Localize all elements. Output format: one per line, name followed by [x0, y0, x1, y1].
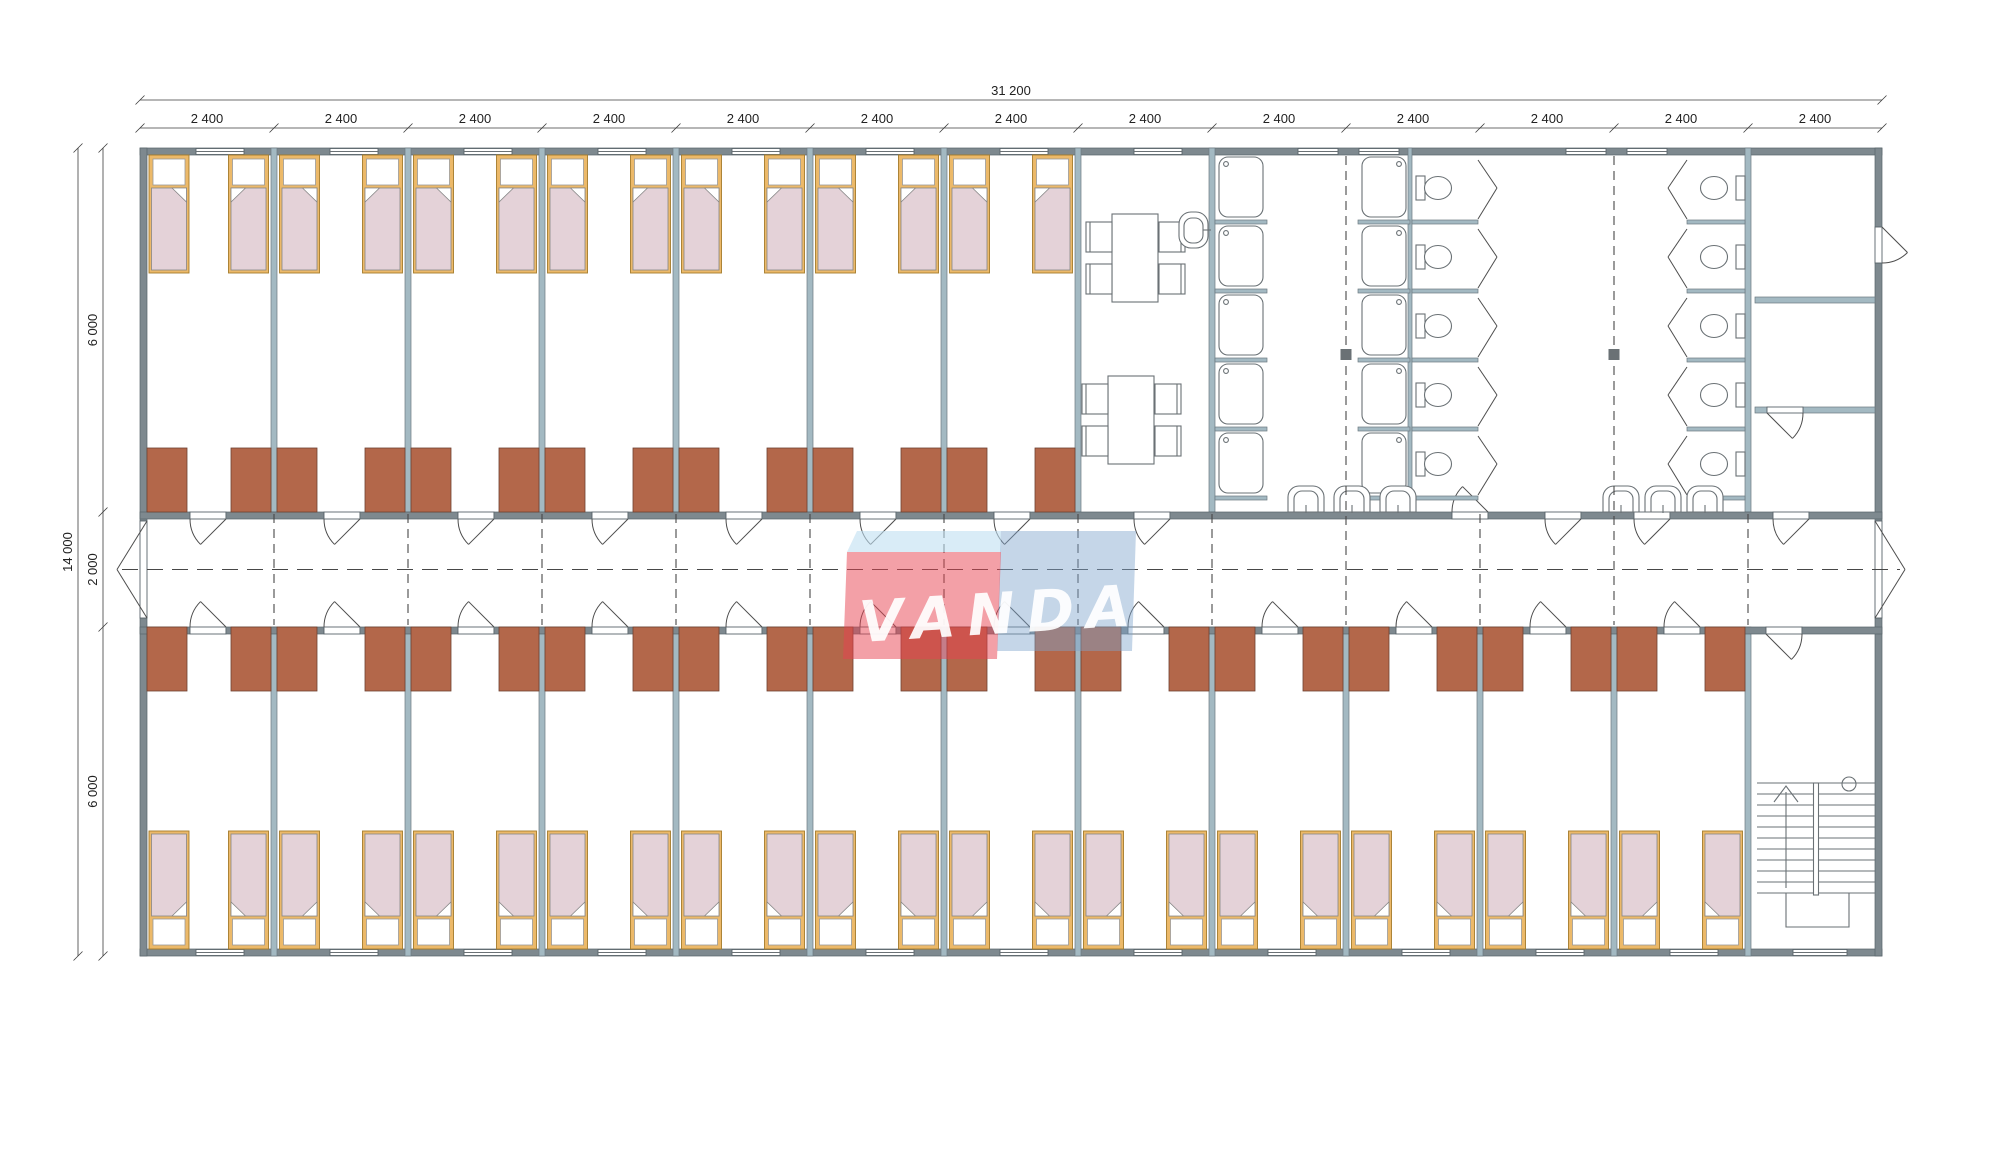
dining-table	[1086, 214, 1185, 302]
shower-stall	[1219, 157, 1263, 217]
dimension-label: 2 400	[1397, 111, 1430, 126]
partition-wall	[1209, 148, 1215, 512]
bed-symbol	[950, 831, 990, 949]
bed-symbol	[414, 831, 454, 949]
wardrobe-symbol	[1705, 627, 1745, 691]
partition-wall	[941, 148, 947, 512]
wardrobe-symbol	[411, 448, 451, 512]
shower-stall	[1219, 364, 1263, 424]
wardrobe-symbol	[1215, 627, 1255, 691]
wardrobe-symbol	[1349, 627, 1389, 691]
bed-symbol	[899, 155, 939, 273]
bed-symbol	[497, 831, 537, 949]
staircase	[1757, 777, 1875, 927]
shower-stall	[1219, 433, 1263, 493]
bed-symbol	[1301, 831, 1341, 949]
washbasin	[1603, 486, 1639, 513]
bed-symbol	[548, 831, 588, 949]
shower-stall	[1362, 157, 1406, 217]
wardrobe-symbol	[277, 627, 317, 691]
dimension-label: 2 400	[1799, 111, 1832, 126]
wardrobe-symbol	[147, 627, 187, 691]
dimension-label: 2 400	[995, 111, 1028, 126]
shower-stall	[1362, 295, 1406, 355]
bed-symbol	[816, 831, 856, 949]
floorplan-drawing: 31 2002 4002 4002 4002 4002 4002 4002 40…	[0, 0, 2000, 1164]
bed-symbol	[631, 155, 671, 273]
partition-wall	[405, 148, 411, 512]
partition-wall	[539, 148, 545, 512]
toilet	[1416, 229, 1497, 288]
shower-stall	[1362, 364, 1406, 424]
washbasin	[1334, 486, 1370, 513]
wardrobe-symbol	[545, 448, 585, 512]
shower-stall	[1219, 295, 1263, 355]
wardrobe-symbol	[1303, 627, 1343, 691]
bed-symbol	[682, 155, 722, 273]
partition-wall	[1477, 627, 1483, 956]
wardrobe-symbol	[499, 627, 539, 691]
dimension-label: 2 400	[1665, 111, 1698, 126]
washbasin	[1687, 486, 1723, 513]
washroom-wall	[1408, 148, 1412, 512]
wardrobe-symbol	[633, 627, 673, 691]
partition-wall	[1745, 148, 1751, 512]
grid-column-marker	[1609, 349, 1620, 360]
partition-wall	[271, 627, 277, 956]
partition-wall	[1075, 627, 1081, 956]
bed-symbol	[1167, 831, 1207, 949]
partition-wall	[673, 148, 679, 512]
dimension-label: 2 400	[1531, 111, 1564, 126]
dimension-chain-top: 31 2002 4002 4002 4002 4002 4002 4002 40…	[136, 83, 1887, 133]
bed-symbol	[1033, 831, 1073, 949]
wardrobe-symbol	[231, 448, 271, 512]
bed-symbol	[631, 831, 671, 949]
wardrobe-symbol	[767, 448, 807, 512]
toilet	[1416, 298, 1497, 357]
wardrobe-symbol	[545, 627, 585, 691]
toilet	[1668, 160, 1745, 219]
wardrobe-symbol	[633, 448, 673, 512]
bed-symbol	[1620, 831, 1660, 949]
toilet	[1668, 367, 1745, 426]
bed-symbol	[816, 155, 856, 273]
partition-wall	[1075, 148, 1081, 512]
wardrobe-symbol	[147, 448, 187, 512]
partition-wall	[405, 627, 411, 956]
bed-symbol	[899, 831, 939, 949]
washbasin	[1179, 212, 1211, 248]
bed-symbol	[1435, 831, 1475, 949]
bed-symbol	[280, 155, 320, 273]
wardrobe-symbol	[1483, 627, 1523, 691]
dining-area	[1082, 212, 1211, 464]
dimension-label: 2 400	[325, 111, 358, 126]
dimension-label: 2 400	[191, 111, 224, 126]
bed-symbol	[363, 831, 403, 949]
bed-symbol	[149, 831, 189, 949]
bed-symbol	[1569, 831, 1609, 949]
toilet	[1416, 367, 1497, 426]
bed-symbol	[765, 155, 805, 273]
washbasin-rows	[1288, 486, 1723, 513]
bed-symbol	[1703, 831, 1743, 949]
dimension-label: 2 400	[459, 111, 492, 126]
bed-symbol	[229, 155, 269, 273]
toilet	[1668, 298, 1745, 357]
watermark: VANDA	[843, 531, 1144, 659]
dimension-label: 2 400	[593, 111, 626, 126]
bed-symbol	[497, 155, 537, 273]
dimension-label: 6 000	[85, 314, 100, 347]
shower-columns	[1215, 157, 1410, 500]
wardrobe-symbol	[901, 448, 941, 512]
bed-symbol	[1352, 831, 1392, 949]
wardrobe-symbol	[1437, 627, 1477, 691]
partition-wall	[807, 627, 813, 956]
washbasin	[1380, 486, 1416, 513]
wardrobe-symbol	[679, 448, 719, 512]
toilet	[1668, 229, 1745, 288]
wardrobe-symbol	[1617, 627, 1657, 691]
bed-symbol	[1033, 155, 1073, 273]
bed-symbol	[414, 155, 454, 273]
dimension-label: 2 000	[85, 553, 100, 586]
dimension-label: 2 400	[1129, 111, 1162, 126]
partition-wall	[271, 148, 277, 512]
partition-wall	[807, 148, 813, 512]
wardrobe-symbol	[947, 448, 987, 512]
partition-wall	[941, 627, 947, 956]
wardrobe-symbol	[411, 627, 451, 691]
bed-symbol	[280, 831, 320, 949]
partition-wall	[673, 627, 679, 956]
dimension-label: 2 400	[861, 111, 894, 126]
dining-table	[1082, 376, 1181, 464]
partition-wall	[1611, 627, 1617, 956]
wardrobe-symbol	[277, 448, 317, 512]
floor-plan-canvas: 31 2002 4002 4002 4002 4002 4002 4002 40…	[0, 0, 2000, 1164]
washbasin	[1645, 486, 1681, 513]
shower-stall	[1362, 433, 1406, 493]
bed-symbol	[950, 155, 990, 273]
bed-symbol	[229, 831, 269, 949]
toilet	[1416, 160, 1497, 219]
grid-column-marker	[1341, 349, 1352, 360]
shower-stall	[1219, 226, 1263, 286]
plan-generated-geometry: 31 2002 4002 4002 4002 4002 4002 4002 40…	[60, 83, 1908, 961]
wardrobe-symbol	[767, 627, 807, 691]
wardrobe-symbol	[1571, 627, 1611, 691]
partition-wall	[1343, 627, 1349, 956]
dimension-chain-left: 14 0006 0002 0006 000	[60, 144, 108, 961]
wardrobe-symbol	[1169, 627, 1209, 691]
washbasin	[1288, 486, 1324, 513]
bed-symbol	[548, 155, 588, 273]
wardrobe-symbol	[365, 448, 405, 512]
dimension-label: 2 400	[1263, 111, 1296, 126]
corridor-wall-top	[140, 512, 1882, 519]
bed-symbol	[363, 155, 403, 273]
wardrobe-symbol	[365, 627, 405, 691]
toilet-stalls	[1412, 160, 1745, 500]
dimension-label: 14 000	[60, 532, 75, 572]
bed-symbol	[765, 831, 805, 949]
wardrobe-symbol	[499, 448, 539, 512]
bed-symbol	[149, 155, 189, 273]
bed-symbol	[1218, 831, 1258, 949]
dimension-label: 6 000	[85, 775, 100, 808]
bed-symbol	[1084, 831, 1124, 949]
partition-wall	[1209, 627, 1215, 956]
partition-wall	[1745, 627, 1751, 956]
wardrobe-symbol	[1035, 448, 1075, 512]
toilet	[1416, 436, 1497, 495]
bed-symbol	[682, 831, 722, 949]
wardrobe-symbol	[679, 627, 719, 691]
watermark-lightblue-band	[847, 531, 1001, 552]
wardrobe-symbol	[231, 627, 271, 691]
bed-symbol	[1486, 831, 1526, 949]
partition-wall	[539, 627, 545, 956]
dimension-label: 2 400	[727, 111, 760, 126]
dimension-label: 31 200	[991, 83, 1031, 98]
wardrobe-symbol	[813, 448, 853, 512]
shower-stall	[1362, 226, 1406, 286]
